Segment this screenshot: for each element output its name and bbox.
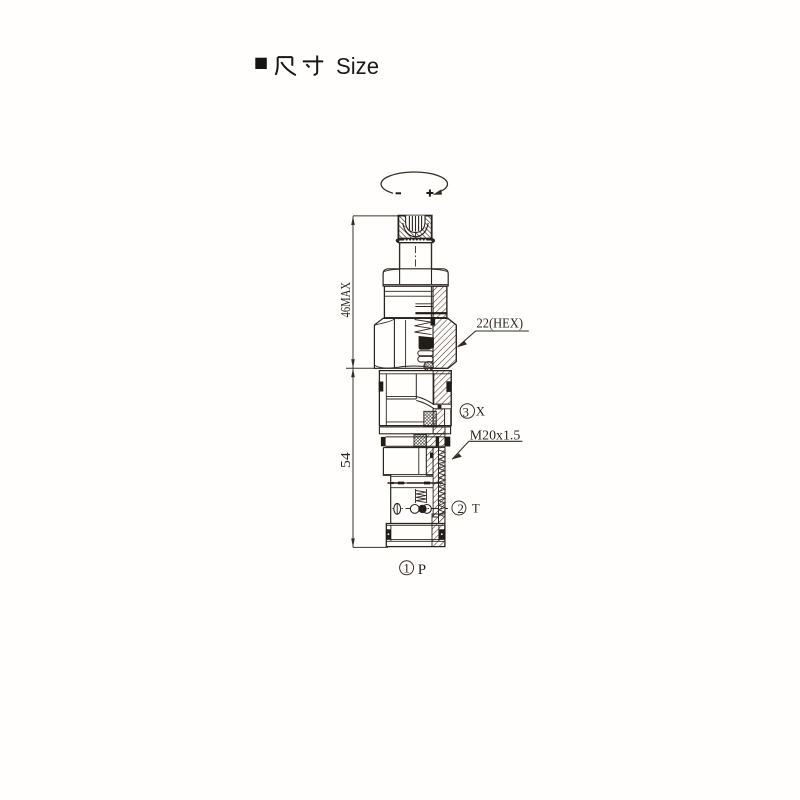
svg-text:46MAX: 46MAX <box>338 282 353 318</box>
svg-text:Size: Size <box>336 53 379 79</box>
svg-text:X: X <box>476 405 485 419</box>
svg-text:T: T <box>472 501 480 515</box>
svg-text:2: 2 <box>457 501 464 516</box>
svg-text:1: 1 <box>403 560 410 575</box>
svg-text:54: 54 <box>338 452 353 468</box>
svg-text:P: P <box>418 562 426 578</box>
svg-text:22(HEX): 22(HEX) <box>477 317 524 332</box>
svg-text:3: 3 <box>463 404 470 419</box>
